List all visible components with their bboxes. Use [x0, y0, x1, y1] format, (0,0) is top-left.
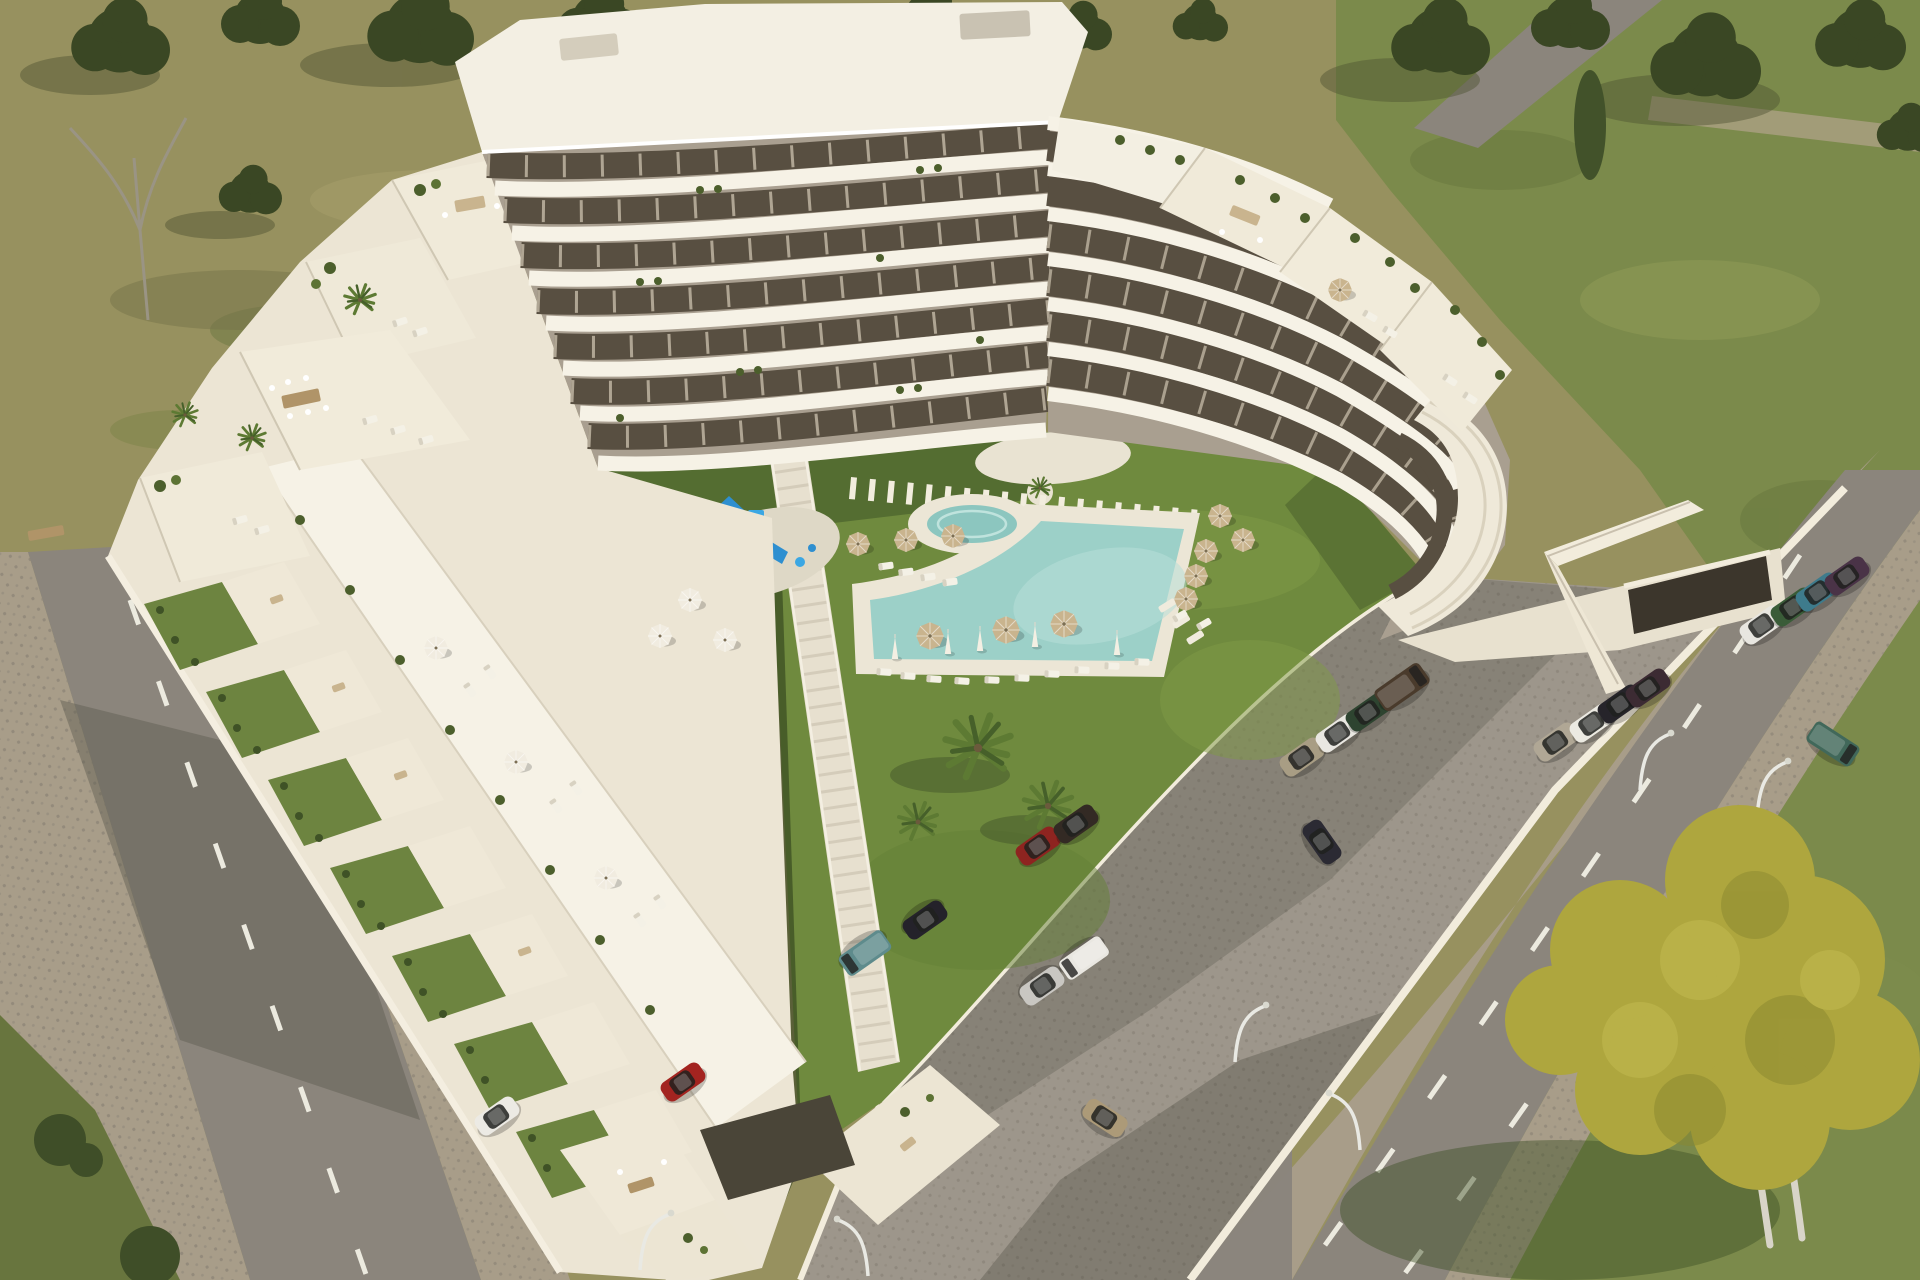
aerial-architectural-render: [0, 0, 1920, 1280]
render-canvas: [0, 0, 1920, 1280]
roof-box: [959, 10, 1030, 40]
poplar-tree: [1574, 70, 1606, 180]
